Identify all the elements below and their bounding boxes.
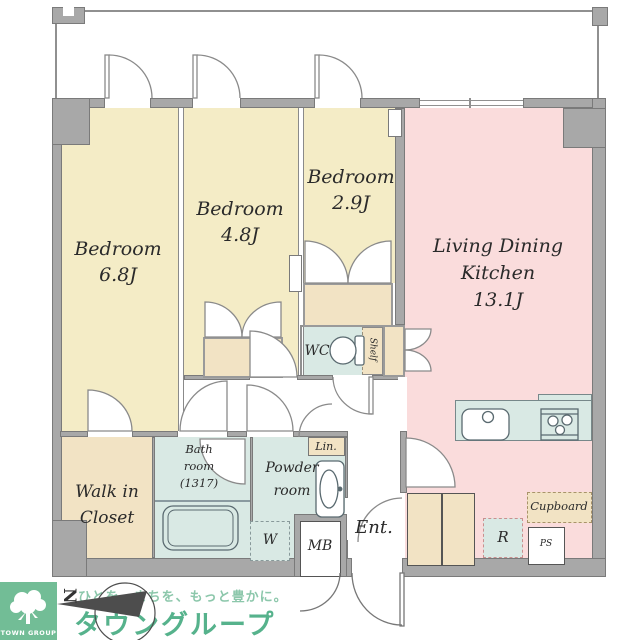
entrance-door-leaf <box>400 573 404 626</box>
closet-door-icon <box>405 329 431 350</box>
ldk-size: 13.1J <box>473 291 523 310</box>
bedroom2-label: Bedroom <box>196 200 283 219</box>
wic-label-1: Walk in <box>75 484 139 501</box>
ldk-label-2: Kitchen <box>461 264 535 283</box>
vanity-sink-icon <box>316 461 344 517</box>
wc-label: WC <box>304 344 329 358</box>
bath-size: (1317) <box>180 478 218 490</box>
kitchen-sink-icon <box>462 409 509 440</box>
mb-door-swing <box>300 573 340 611</box>
linen-label: Lin. <box>315 441 336 452</box>
door-swing-icon <box>88 390 132 431</box>
balcony-door <box>315 55 362 98</box>
bedroom1-label: Bedroom <box>74 240 161 259</box>
bath-label-2: room <box>184 461 214 473</box>
bath-label-1: Bath <box>185 444 212 456</box>
cupboard-label: Cupboard <box>530 501 588 513</box>
washer-label: W <box>263 533 277 547</box>
floor-plan: Bedroom 6.8J Bedroom 4.8J Bedroom 2.9J L… <box>0 0 640 640</box>
meter-box-label: MB <box>308 539 333 553</box>
bedroom3-size: 2.9J <box>332 194 370 213</box>
closet-door-icon <box>305 241 348 283</box>
balcony-door <box>105 55 152 98</box>
ent-label: Ent. <box>355 519 393 537</box>
door-swing-icon <box>333 377 372 414</box>
door-swing-icon <box>299 404 332 437</box>
powder-label-2: room <box>274 484 311 498</box>
bedroom3-label: Bedroom <box>307 168 394 187</box>
door-leaf <box>369 377 373 414</box>
town-group-logo: TOWN GROUP <box>0 582 57 640</box>
pipe-space-label: PS <box>540 540 552 549</box>
bedroom2-size: 4.8J <box>221 226 259 245</box>
shelf-label: Shelf <box>368 338 377 362</box>
door-swing-icon <box>247 385 293 431</box>
closet-door-icon <box>205 302 242 337</box>
entrance-door-swing <box>352 573 402 625</box>
door-swing-icon <box>406 438 455 487</box>
ldk-label-1: Living Dining <box>433 237 563 256</box>
closet-door-icon <box>348 241 391 283</box>
balcony-door <box>193 55 240 98</box>
powder-label-1: Powder <box>265 461 318 475</box>
bathtub-icon <box>163 506 238 550</box>
wic-label-2: Closet <box>80 510 134 527</box>
fridge-label: R <box>497 530 508 545</box>
logo-company-en: TOWN GROUP <box>0 629 57 637</box>
brand-company-name: タウングループ <box>74 603 275 640</box>
door-swing-icon <box>180 381 227 431</box>
door-swing-icon <box>250 331 297 377</box>
stove-icon <box>541 409 578 440</box>
closet-door-icon <box>405 350 431 371</box>
bedroom1-size: 6.8J <box>99 266 137 285</box>
toilet-icon <box>330 336 364 365</box>
